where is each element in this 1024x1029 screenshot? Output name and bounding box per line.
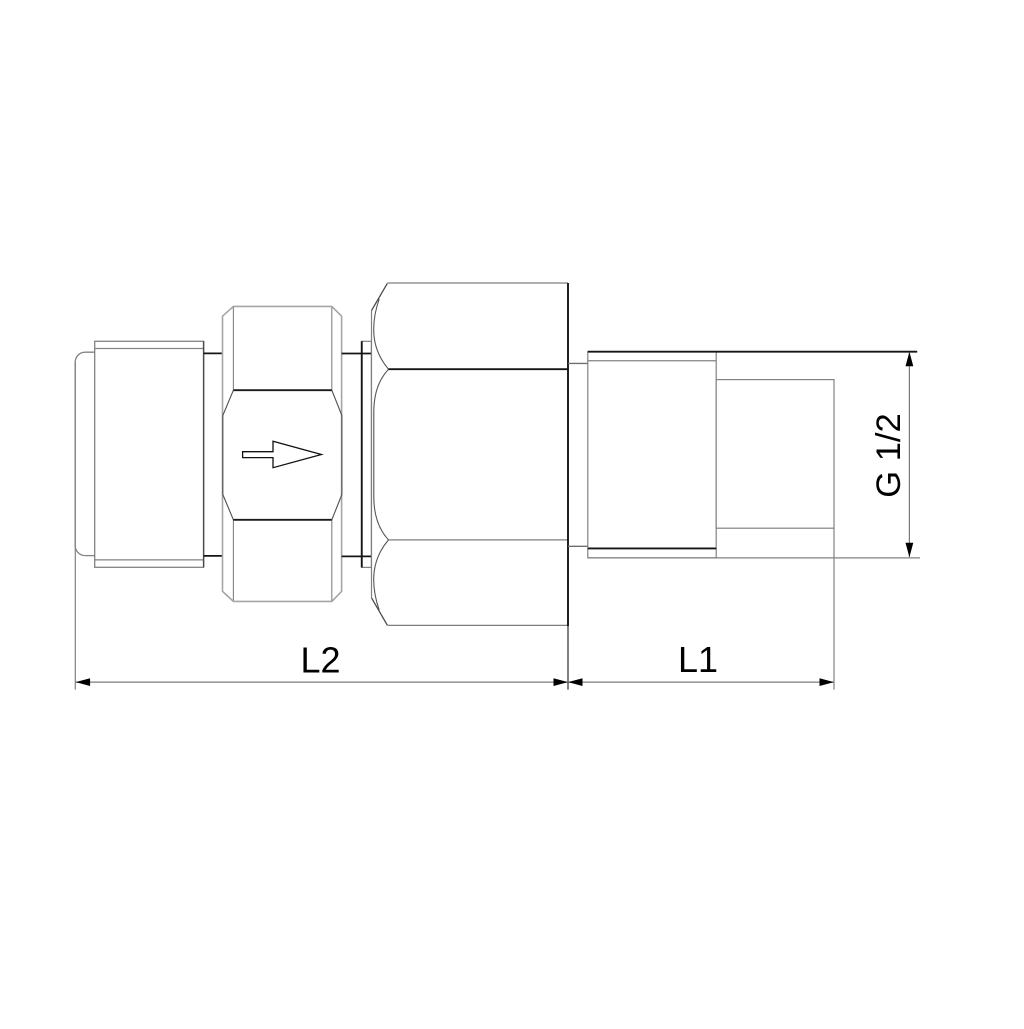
svg-text:G 1/2: G 1/2 (870, 413, 908, 497)
svg-text:L2: L2 (300, 640, 340, 681)
svg-text:L1: L1 (678, 639, 718, 680)
